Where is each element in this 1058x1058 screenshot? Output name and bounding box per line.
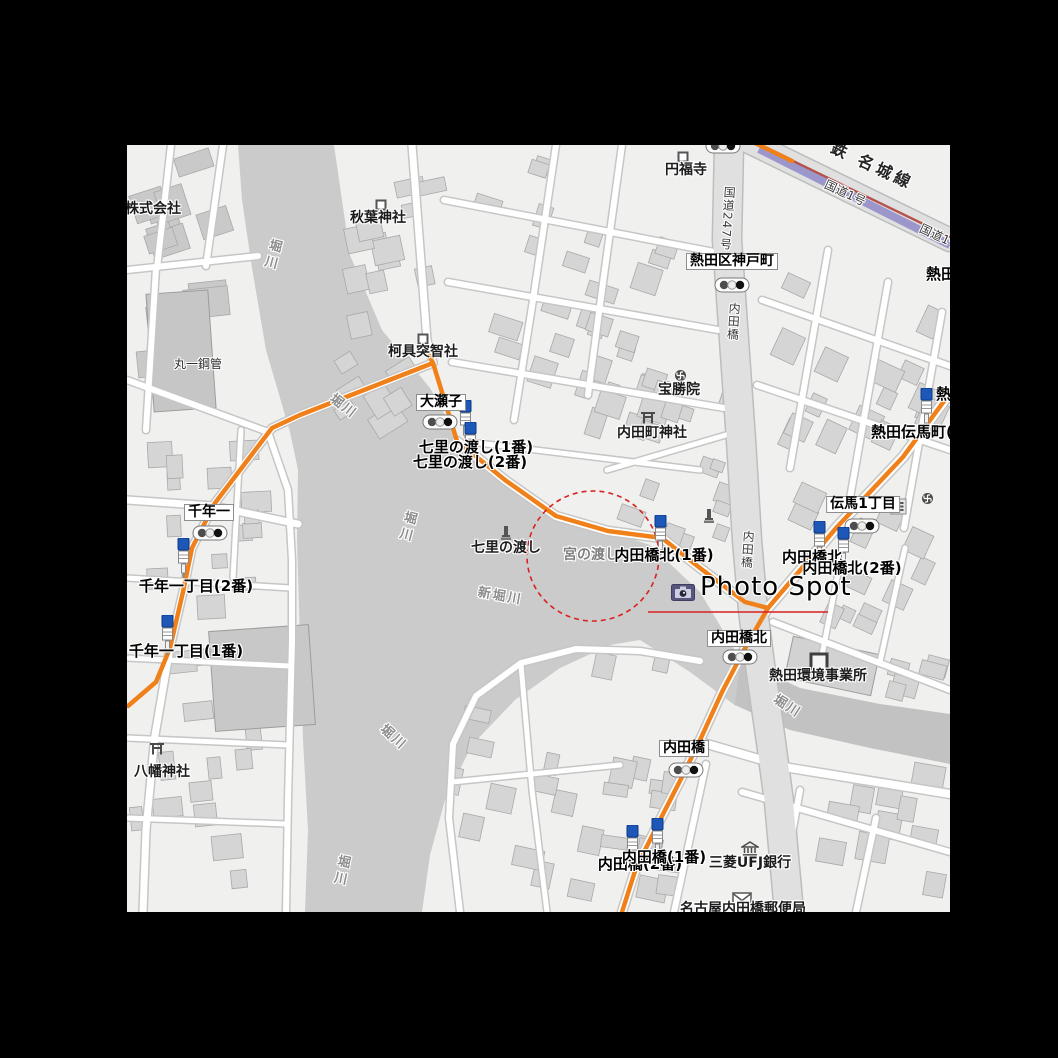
map-label-sennen-bus-1: 千年一丁目(1番) [129, 644, 243, 660]
map-label-uchidabashi-yubinkyoku: 名古屋内田橋郵便局 [680, 902, 806, 912]
map-label-kankyo-jigyosho: 熱田環境事業所 [769, 669, 867, 684]
map-label-horikawa-2: 堀川 [327, 392, 359, 421]
signal-icon [722, 649, 758, 669]
map-label-uchidabashi-kita-bus-1: 内田橋北(1番) [614, 548, 713, 564]
map-label-horikawa-4: 堀川 [771, 693, 804, 721]
map-label-uchidabashi-road-1: 内田橋 [725, 302, 740, 342]
map-label-shichiri-bus-2: 七里の渡し(2番) [413, 455, 527, 471]
map-label-kabushiki: 株式会社 [127, 202, 181, 217]
map-label-maruichi: 丸一鋼管 [174, 358, 222, 371]
map-label-shin-horikawa: 新堀川 [477, 586, 524, 607]
signal-icon [705, 145, 741, 158]
camera-icon[interactable] [671, 584, 695, 605]
map-label-shichiri-no-watashi-site: 七里の渡し [471, 541, 541, 556]
map-label-hachiman-jinja: 八幡神社 [134, 765, 190, 780]
map-label-kokudo-1-a: 国道1号 [823, 178, 868, 208]
map-label-atsuta-tenmacho-bus: 熱田伝馬町( [871, 425, 950, 441]
map-label-shichiri-bus-1: 七里の渡し(1番) [419, 440, 533, 456]
map-label-oseko-box: 大瀬子 [416, 394, 466, 411]
map-label-mitsubishi-ufj: 三菱UFJ銀行 [709, 856, 791, 871]
map-label-kagutsuchi-sha: 柯具突智社 [388, 345, 458, 360]
monument-icon [703, 508, 715, 528]
map-viewport[interactable]: 株式会社丸一鋼管秋葉神社円福寺柯具突智社宝勝院内田町神社熱田環境事業所八幡神社三… [127, 145, 950, 912]
map-label-uchidabashi-bus-1: 内田橋(1番) [622, 850, 706, 866]
manji-icon [921, 490, 934, 509]
map-label-horikawa-1: 堀川 [260, 237, 282, 273]
signal-icon [422, 414, 458, 434]
map-label-uchidabashi-kita-box: 内田橋北 [707, 630, 771, 647]
map-label-horikawa-5: 堀川 [377, 723, 408, 753]
map-label-akiba-jinja: 秋葉神社 [350, 211, 406, 226]
map-label-enpukuji: 円福寺 [665, 163, 707, 178]
map-label-horikawa-3: 堀川 [395, 509, 417, 545]
map-label-denma-box: 伝馬1丁目 [826, 496, 900, 513]
signal-icon [714, 277, 750, 297]
signal-icon [668, 762, 704, 782]
map-label-uchidabashi-box: 内田橋 [659, 740, 709, 757]
map-label-sennen-box: 千年一 [184, 504, 234, 521]
screenshot-root: { "annotation": { "photo_spot_label": "P… [0, 0, 1058, 1058]
map-label-atsuta-partial-mid: 熱田 [936, 387, 950, 403]
map-label-uchidacho-jinja: 内田町神社 [617, 426, 687, 441]
map-label-sennen-bus-2: 千年一丁目(2番) [139, 579, 253, 595]
torii-icon [149, 740, 165, 759]
map-label-horikawa-6: 堀川 [330, 853, 350, 889]
signal-icon [192, 525, 228, 545]
map-label-miya-no-watashi: 宮の渡し [563, 548, 619, 563]
map-label-kokudo-1-b: 国道1号 [918, 222, 950, 252]
map-label-photo-spot-label: Photo Spot [700, 574, 852, 601]
map-label-hoshoin: 宝勝院 [658, 383, 700, 398]
map-label-route-247: 国道247号 [718, 186, 735, 252]
map-label-kobe-box: 熱田区神戸町 [686, 253, 778, 270]
busstop-icon [176, 538, 191, 583]
map-overlay: 株式会社丸一鋼管秋葉神社円福寺柯具突智社宝勝院内田町神社熱田環境事業所八幡神社三… [127, 145, 950, 912]
map-label-atsuta-partial-top: 熱田 [926, 267, 950, 283]
map-label-uchidabashi-road-2: 内田橋 [739, 530, 754, 570]
